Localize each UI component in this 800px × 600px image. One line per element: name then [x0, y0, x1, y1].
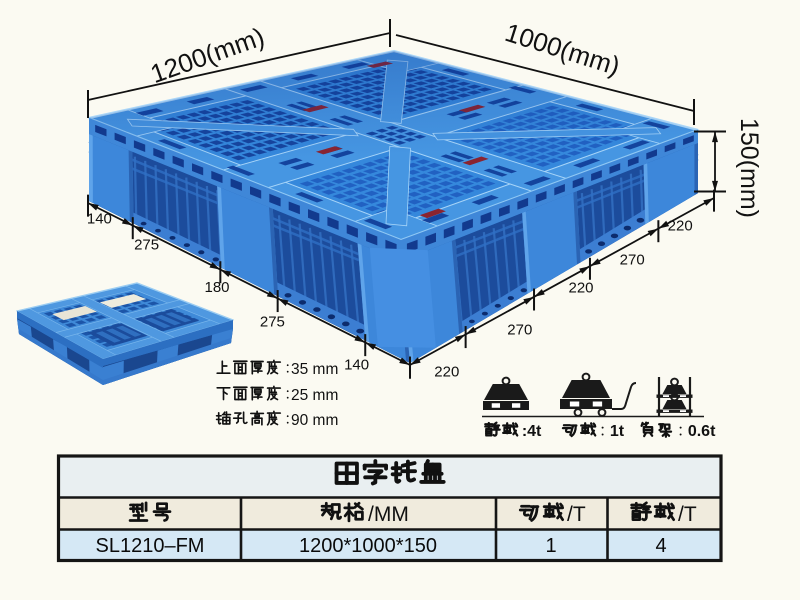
svg-text:/MM: /MM [368, 503, 409, 526]
svg-text:270: 270 [620, 251, 645, 268]
svg-text:35 mm: 35 mm [291, 361, 338, 378]
svg-text:90 mm: 90 mm [291, 412, 338, 429]
svg-text:0.6t: 0.6t [688, 423, 716, 440]
svg-text:140: 140 [87, 210, 112, 227]
svg-text:275: 275 [260, 313, 285, 330]
svg-text:180: 180 [204, 279, 229, 296]
svg-text:150(mm): 150(mm) [735, 118, 763, 218]
svg-text:220: 220 [434, 364, 459, 381]
svg-text:1: 1 [545, 535, 556, 557]
svg-text::4t: :4t [522, 423, 542, 440]
svg-text:1t: 1t [610, 423, 625, 440]
svg-text:140: 140 [344, 357, 369, 374]
svg-text:SL1210–FM: SL1210–FM [96, 535, 205, 557]
svg-text:4: 4 [655, 535, 666, 557]
svg-text:25 mm: 25 mm [291, 387, 338, 404]
svg-text:220: 220 [668, 217, 693, 234]
svg-text:1000(mm): 1000(mm) [502, 17, 624, 81]
svg-text:275: 275 [134, 237, 159, 254]
svg-text:1200(mm): 1200(mm) [146, 21, 268, 89]
svg-text:/T: /T [567, 503, 586, 526]
svg-text:270: 270 [507, 322, 532, 339]
svg-text:/T: /T [678, 503, 697, 526]
svg-text:1200*1000*150: 1200*1000*150 [299, 535, 437, 557]
svg-text:220: 220 [568, 280, 593, 297]
